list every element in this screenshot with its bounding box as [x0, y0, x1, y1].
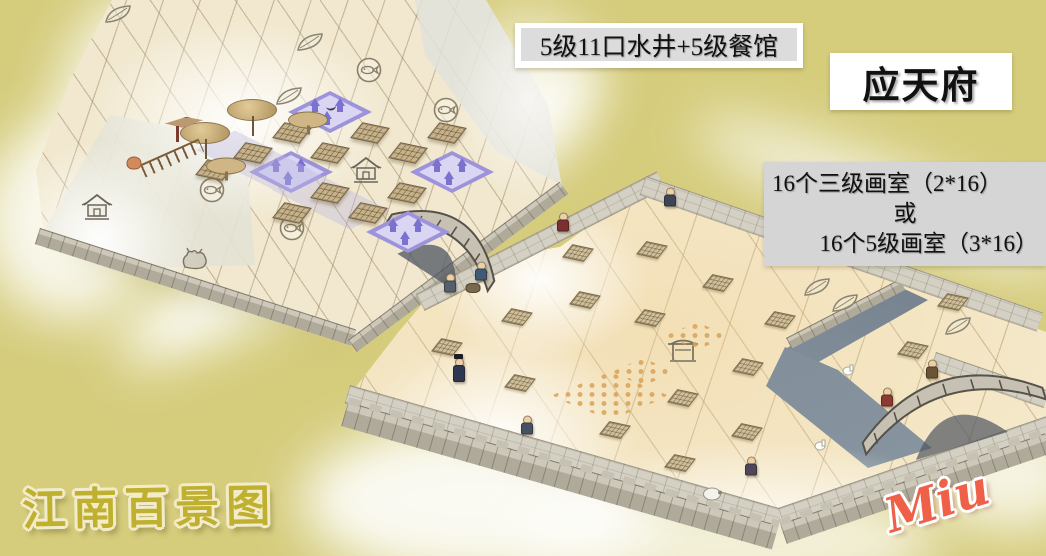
supply-stack[interactable]: [667, 389, 699, 407]
supply-stack[interactable]: [599, 421, 631, 439]
studio-option-or: 或: [772, 199, 1038, 229]
supply-stack[interactable]: [501, 308, 533, 326]
supply-stack[interactable]: [732, 358, 764, 376]
supply-stack[interactable]: [569, 291, 601, 309]
supply-stack[interactable]: [731, 423, 763, 441]
leaf-tile-icon: [830, 292, 860, 314]
villager[interactable]: [881, 388, 893, 407]
city-annotation-box: 应天府: [830, 53, 1012, 110]
fence[interactable]: [140, 139, 204, 178]
official-villager[interactable]: [453, 358, 465, 382]
restaurant-umbrella[interactable]: [227, 99, 277, 121]
restaurant-stall[interactable]: [165, 117, 203, 143]
supply-stack[interactable]: [702, 274, 734, 292]
leaf-tile-icon: [802, 276, 832, 298]
sheep[interactable]: [703, 488, 721, 501]
game-title: 江南百景图: [21, 470, 277, 538]
leaf-tile-icon: [103, 3, 133, 25]
fish-pond-icon: [195, 176, 229, 204]
well-annotation-text: 5级11口水井+5级餐馆: [521, 28, 797, 61]
fish-pond-icon: [352, 56, 386, 84]
supply-stack[interactable]: [636, 241, 668, 259]
villager[interactable]: [475, 262, 487, 281]
house-tile-icon[interactable]: [80, 192, 114, 222]
villager[interactable]: [557, 213, 569, 232]
game-screenshot: 5级11口水井+5级餐馆 应天府 16个三级画室（2*16） 或 16个5级画室…: [0, 0, 1046, 556]
supply-stack[interactable]: [634, 309, 666, 327]
well-annotation-box: 5级11口水井+5级餐馆: [515, 23, 803, 68]
well-building[interactable]: [427, 122, 467, 144]
studio-annotation-box: 16个三级画室（2*16） 或 16个5级画室（3*16）: [764, 162, 1046, 266]
cat-sketch-icon: [177, 243, 209, 271]
studio-option-1: 16个三级画室（2*16）: [772, 169, 1038, 199]
goose[interactable]: [843, 367, 854, 376]
supply-stack[interactable]: [764, 311, 796, 329]
villager[interactable]: [444, 274, 456, 293]
studio-option-2: 16个5级画室（3*16）: [772, 229, 1038, 259]
villager[interactable]: [745, 457, 757, 476]
villager[interactable]: [926, 360, 938, 379]
dog[interactable]: [466, 283, 481, 293]
fish-pond-icon: [429, 96, 463, 124]
leaf-tile-icon: [295, 31, 325, 53]
supply-stack[interactable]: [664, 454, 696, 472]
supply-stack[interactable]: [504, 374, 536, 392]
restaurant-table[interactable]: [288, 112, 328, 129]
villager[interactable]: [521, 416, 533, 435]
supply-stack[interactable]: [897, 341, 929, 359]
city-name: 应天府: [863, 55, 980, 109]
supply-stack[interactable]: [562, 244, 594, 262]
child-villager[interactable]: [127, 157, 142, 170]
restaurant-table[interactable]: [206, 158, 246, 175]
goose[interactable]: [815, 442, 826, 451]
house-tile-icon[interactable]: [349, 155, 383, 185]
supply-stack[interactable]: [937, 293, 969, 311]
leaf-tile-icon: [943, 315, 973, 337]
villager[interactable]: [664, 188, 676, 207]
